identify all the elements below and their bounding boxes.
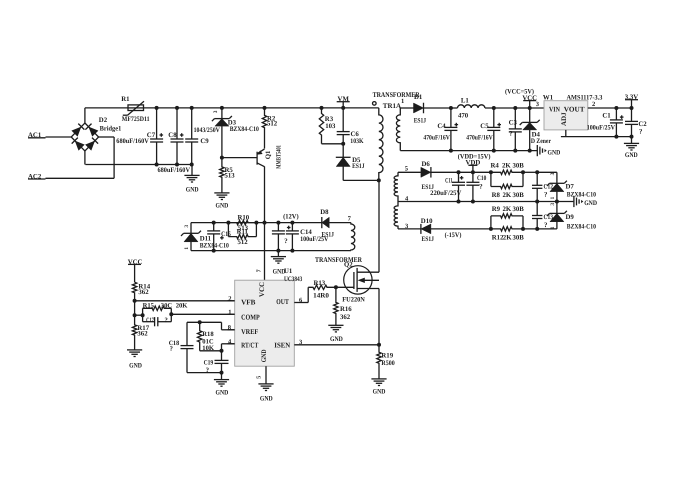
svg-text:ES1J: ES1J bbox=[422, 236, 435, 243]
svg-text:?: ? bbox=[170, 345, 173, 352]
svg-text:512: 512 bbox=[267, 120, 278, 127]
svg-text:1: 1 bbox=[401, 98, 404, 105]
svg-text:10K: 10K bbox=[202, 345, 215, 352]
svg-text:R4: R4 bbox=[491, 163, 500, 170]
svg-text:ES1J: ES1J bbox=[352, 163, 365, 170]
svg-text:GND: GND bbox=[216, 390, 229, 397]
svg-text:TRANSFORMER: TRANSFORMER bbox=[315, 256, 363, 264]
svg-text:(12V): (12V) bbox=[283, 214, 299, 221]
svg-text:C19: C19 bbox=[204, 359, 214, 366]
svg-text:COMP: COMP bbox=[241, 313, 260, 322]
svg-text:2K: 2K bbox=[502, 163, 511, 170]
svg-text:ES1J: ES1J bbox=[414, 118, 427, 125]
svg-text:Q1: Q1 bbox=[265, 150, 272, 159]
svg-text:R16: R16 bbox=[340, 306, 352, 313]
svg-text:C2: C2 bbox=[638, 121, 647, 128]
svg-text:GND: GND bbox=[260, 396, 273, 403]
svg-text:R15: R15 bbox=[143, 302, 155, 309]
svg-text:7: 7 bbox=[257, 269, 263, 272]
svg-text:?: ? bbox=[165, 317, 168, 324]
svg-text:R11: R11 bbox=[237, 229, 249, 236]
svg-text:R500: R500 bbox=[381, 360, 395, 367]
svg-text:220uF/25V: 220uF/25V bbox=[430, 190, 461, 197]
svg-text:Bridge1: Bridge1 bbox=[100, 126, 122, 133]
svg-text:AMS1117-3.3: AMS1117-3.3 bbox=[567, 94, 603, 101]
svg-text:680uF/160V: 680uF/160V bbox=[158, 167, 191, 174]
svg-text:C10: C10 bbox=[477, 175, 487, 182]
svg-text:D9: D9 bbox=[566, 214, 575, 221]
svg-text:1: 1 bbox=[550, 196, 556, 199]
svg-text:362: 362 bbox=[137, 330, 148, 337]
svg-text:ADJ: ADJ bbox=[560, 112, 568, 126]
svg-text:D7: D7 bbox=[566, 184, 575, 191]
svg-text:D1: D1 bbox=[414, 94, 423, 101]
svg-text:U1: U1 bbox=[284, 268, 293, 275]
svg-text:GND: GND bbox=[216, 202, 229, 209]
svg-text:VOUT: VOUT bbox=[564, 105, 585, 113]
svg-text:R10: R10 bbox=[238, 214, 250, 221]
svg-text:470uF/16V: 470uF/16V bbox=[423, 134, 449, 141]
svg-text:D8: D8 bbox=[320, 209, 329, 216]
svg-text:680uF/160V: 680uF/160V bbox=[116, 138, 149, 145]
svg-text:MMBT5401: MMBT5401 bbox=[276, 145, 283, 169]
svg-text:C4: C4 bbox=[437, 123, 446, 130]
svg-text:BZX84-C10: BZX84-C10 bbox=[230, 126, 260, 133]
svg-text:362: 362 bbox=[138, 289, 149, 296]
svg-text:3: 3 bbox=[550, 203, 556, 206]
svg-text:MF725D11: MF725D11 bbox=[122, 116, 150, 123]
svg-text:2K: 2K bbox=[503, 192, 512, 199]
svg-text:1043/250V: 1043/250V bbox=[194, 127, 220, 134]
svg-text:TR1A: TR1A bbox=[383, 102, 401, 110]
svg-text:14R0: 14R0 bbox=[313, 293, 329, 300]
svg-text:D11: D11 bbox=[200, 236, 212, 243]
svg-text:VCC: VCC bbox=[258, 282, 266, 297]
svg-text:?: ? bbox=[284, 238, 287, 245]
svg-text:30B: 30B bbox=[513, 235, 525, 242]
svg-text:30B: 30B bbox=[513, 206, 525, 213]
svg-text:R1: R1 bbox=[121, 96, 130, 103]
svg-text:BZX84-C10: BZX84-C10 bbox=[567, 192, 597, 199]
svg-text:ISEN: ISEN bbox=[274, 341, 291, 350]
svg-text:?: ? bbox=[544, 191, 547, 198]
svg-text:R13: R13 bbox=[314, 280, 326, 287]
svg-text:C8: C8 bbox=[168, 132, 177, 139]
svg-text:OUT: OUT bbox=[276, 297, 289, 306]
svg-text:ES1J: ES1J bbox=[322, 231, 335, 238]
svg-text:?: ? bbox=[509, 130, 512, 137]
svg-text:C6: C6 bbox=[351, 131, 360, 138]
svg-text:513: 513 bbox=[225, 172, 236, 179]
svg-text:C17: C17 bbox=[146, 317, 154, 324]
svg-text:GND: GND bbox=[186, 187, 199, 194]
svg-text:C11: C11 bbox=[445, 178, 453, 185]
svg-text:R18: R18 bbox=[202, 331, 214, 338]
svg-text:C3: C3 bbox=[509, 120, 518, 127]
svg-text:3: 3 bbox=[550, 172, 556, 175]
svg-text:100uF/25V: 100uF/25V bbox=[587, 125, 615, 132]
svg-text:GND: GND bbox=[548, 149, 561, 156]
svg-text:20K: 20K bbox=[176, 302, 189, 309]
svg-text:?: ? bbox=[639, 128, 642, 135]
svg-text:GND: GND bbox=[625, 152, 638, 159]
svg-text:R19: R19 bbox=[381, 353, 393, 360]
svg-text:BZX84-C10: BZX84-C10 bbox=[567, 223, 597, 230]
svg-text:RT/CT: RT/CT bbox=[241, 341, 258, 350]
svg-text:R9: R9 bbox=[492, 206, 501, 213]
svg-text:GND: GND bbox=[260, 350, 268, 363]
svg-text:(-15V): (-15V) bbox=[445, 232, 462, 239]
svg-text:512: 512 bbox=[238, 239, 249, 246]
svg-text:C9: C9 bbox=[200, 138, 209, 145]
svg-text:2: 2 bbox=[592, 101, 595, 108]
svg-text:FU220N: FU220N bbox=[342, 297, 365, 304]
svg-text:D2: D2 bbox=[99, 117, 108, 124]
svg-text:VFB: VFB bbox=[241, 297, 256, 306]
svg-text:GND: GND bbox=[330, 336, 343, 343]
svg-text:VIN: VIN bbox=[549, 105, 561, 113]
svg-text:2: 2 bbox=[228, 296, 231, 303]
svg-text:3: 3 bbox=[213, 110, 219, 113]
svg-text:C14: C14 bbox=[300, 229, 312, 236]
svg-text:1: 1 bbox=[228, 309, 231, 316]
svg-text:C1: C1 bbox=[602, 112, 611, 119]
svg-text:L1: L1 bbox=[461, 97, 470, 104]
svg-text:2K: 2K bbox=[503, 206, 512, 213]
svg-text:30B: 30B bbox=[513, 163, 525, 170]
svg-text:30B: 30B bbox=[513, 192, 525, 199]
svg-text:UC3843: UC3843 bbox=[284, 276, 303, 283]
svg-text:470uF/16V: 470uF/16V bbox=[466, 134, 492, 141]
svg-text:1: 1 bbox=[550, 226, 556, 229]
svg-text:C5: C5 bbox=[480, 123, 489, 130]
svg-text:103: 103 bbox=[325, 123, 336, 130]
svg-text:?: ? bbox=[479, 183, 482, 190]
svg-text:D10: D10 bbox=[421, 218, 433, 225]
svg-text:5: 5 bbox=[257, 376, 263, 379]
svg-text:2K: 2K bbox=[503, 235, 512, 242]
svg-text:?: ? bbox=[544, 222, 547, 229]
svg-text:BZX84-C10: BZX84-C10 bbox=[200, 243, 230, 250]
svg-text:103K: 103K bbox=[350, 138, 364, 145]
svg-text:W1: W1 bbox=[543, 94, 554, 101]
svg-text:1: 1 bbox=[184, 247, 190, 250]
svg-text:GND: GND bbox=[584, 200, 597, 207]
svg-text:3: 3 bbox=[184, 225, 190, 228]
svg-text:470: 470 bbox=[458, 113, 469, 120]
svg-text:R8: R8 bbox=[492, 192, 501, 199]
svg-text:GND: GND bbox=[373, 389, 386, 396]
svg-text:VREF: VREF bbox=[241, 327, 259, 336]
svg-text:362: 362 bbox=[340, 314, 351, 321]
svg-text:D Zener: D Zener bbox=[531, 138, 551, 145]
svg-text:D6: D6 bbox=[422, 161, 431, 168]
svg-text:GND: GND bbox=[129, 363, 142, 370]
